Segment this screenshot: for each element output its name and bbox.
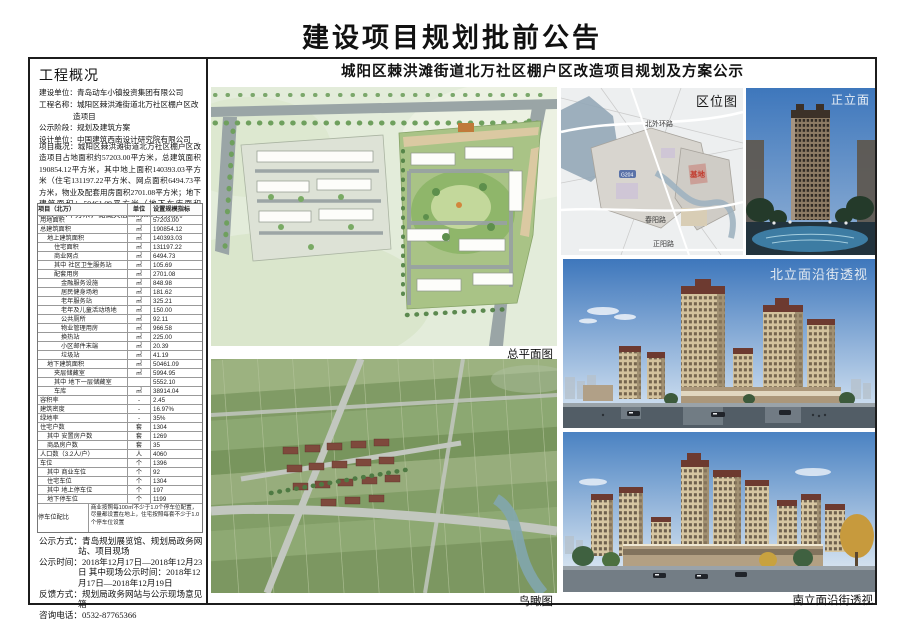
table-row: 绿地率-35% xyxy=(38,414,202,423)
row-label: 容积率 xyxy=(38,396,127,404)
header-value: 设置规模指标 xyxy=(150,204,202,215)
row-value: 57203.00 xyxy=(150,216,202,224)
row-label-text: 商业网点 xyxy=(54,253,79,260)
row-label: 其中地下一层储藏室 xyxy=(38,378,127,386)
announcement-value: 青岛规划展览馆、规划局政务网站、项目现场 xyxy=(78,536,202,556)
south-perspective-caption: 南立面沿街透视 xyxy=(563,592,873,608)
row-label-text: 车库 xyxy=(54,388,66,395)
row-unit: ㎡ xyxy=(127,297,150,305)
location-map-drawing: G204 北外环路 春阳路 正阳路 基地 xyxy=(561,88,743,255)
site-plan-image xyxy=(211,87,557,346)
row-unit: ㎡ xyxy=(127,315,150,323)
page-title: 建设项目规划批前公告 xyxy=(0,16,904,55)
row-unit: 个 xyxy=(127,486,150,494)
announcement-value: 2018年12月17日—2018年12月23日 其中现场公示时间：2018年12… xyxy=(78,557,202,587)
row-unit: 人 xyxy=(127,450,150,458)
front-elevation-caption: 正立面 xyxy=(831,91,870,108)
row-label-text: 地下建筑面积 xyxy=(47,361,84,368)
row-label-text: 夹层储藏室 xyxy=(54,370,85,377)
row-value: 131197.22 xyxy=(150,243,202,251)
row-label: 住宅车位 xyxy=(38,477,127,485)
row-label: 其中安置房户数 xyxy=(38,432,127,440)
table-row: 人口数（3.2人/户）人4060 xyxy=(38,450,202,459)
table-row: 其中安置房户数套1269 xyxy=(38,432,202,441)
announcement-label: 反馈方式： xyxy=(39,589,82,599)
row-unit: ㎡ xyxy=(127,387,150,395)
info-value: 青岛动车小镇投资集团有限公司 xyxy=(77,88,183,97)
row-value: 35 xyxy=(150,441,202,449)
announcement-line: 公示时间：2018年12月17日—2018年12月23日 其中现场公示时间：20… xyxy=(39,557,203,587)
row-unit: ㎡ xyxy=(127,369,150,377)
row-label: 公共厕所 xyxy=(38,315,127,323)
row-label-text: 居民健身场地 xyxy=(61,289,98,296)
row-unit: ㎡ xyxy=(127,243,150,251)
north-perspective-drawing xyxy=(563,259,875,428)
row-label: 老年服务站 xyxy=(38,297,127,305)
overview-heading: 工程概况 xyxy=(39,65,99,85)
row-value: 105.69 xyxy=(150,261,202,269)
row-label-text: 老年及儿童活动场地 xyxy=(61,307,117,314)
table-row: 居民健身场地㎡181.62 xyxy=(38,288,202,297)
row-label-text: 地上建筑面积 xyxy=(47,235,84,242)
table-row: 公共厕所㎡92.11 xyxy=(38,315,202,324)
row-label-text: 住宅车位 xyxy=(47,478,72,485)
row-label-text: 住宅面积 xyxy=(54,244,79,251)
row-value: 50461.09 xyxy=(150,360,202,368)
row-label-text: 物业管理用房 xyxy=(61,325,98,332)
front-elevation-image: 正立面 xyxy=(746,88,875,255)
table-row: 住宅车位个1304 xyxy=(38,477,202,486)
front-elevation-drawing xyxy=(746,88,875,255)
row-value: 92.11 xyxy=(150,315,202,323)
row-value: 6494.73 xyxy=(150,252,202,260)
row-unit: 套 xyxy=(127,423,150,431)
row-label: 金融服务设施 xyxy=(38,279,127,287)
row-unit: ㎡ xyxy=(127,342,150,350)
table-row: 配套用房㎡2701.08 xyxy=(38,270,202,279)
row-label-text: 总建筑面积 xyxy=(40,226,71,233)
announcement-label: 公示方式： xyxy=(39,536,82,546)
row-label: 老年及儿童活动场地 xyxy=(38,306,127,314)
announcement-label: 咨询电话： xyxy=(39,610,82,620)
row-label: 夹层储藏室 xyxy=(38,369,127,377)
row-unit: ㎡ xyxy=(127,270,150,278)
row-value: 190854.12 xyxy=(150,225,202,233)
south-perspective-image xyxy=(563,432,875,592)
table-row: 老年服务站㎡325.21 xyxy=(38,297,202,306)
table-row: 住宅面积㎡131197.22 xyxy=(38,243,202,252)
row-value: 140393.03 xyxy=(150,234,202,242)
row-unit: ㎡ xyxy=(127,351,150,359)
project-subtitle: 城阳区棘洪滩街道北万社区棚户区改造项目规划及方案公示 xyxy=(210,59,875,86)
row-unit: 个 xyxy=(127,495,150,503)
qizhong-marker: 其中 xyxy=(47,433,59,440)
row-label-text: 小区邮件末端 xyxy=(61,343,98,350)
row-label-text: 老年服务站 xyxy=(61,298,92,305)
row-value: 1304 xyxy=(150,423,202,431)
announcement-line: 反馈方式：规划局政务网站与公示现场意见箱 xyxy=(39,589,203,609)
row-value: 5552.10 xyxy=(150,378,202,386)
row-unit: 套 xyxy=(127,441,150,449)
info-value: 城阳区棘洪滩街道北万社区棚户区改造项目 xyxy=(73,100,198,121)
row-value: 848.98 xyxy=(150,279,202,287)
location-map-image: G204 北外环路 春阳路 正阳路 基地 区位图 xyxy=(561,88,743,255)
row-value: 2701.08 xyxy=(150,270,202,278)
row-label-text: 换热站 xyxy=(61,334,80,341)
row-value: 41.19 xyxy=(150,351,202,359)
table-row: 老年及儿童活动场地㎡150.00 xyxy=(38,306,202,315)
header-unit: 单位 xyxy=(127,204,150,215)
row-label: 用地面积 xyxy=(38,216,127,224)
table-header-row: 项目（北万）单位设置规模指标 xyxy=(38,204,202,216)
row-label: 商业网点 xyxy=(38,252,127,260)
row-unit: - xyxy=(127,396,150,404)
table-row: 地下建筑面积㎡50461.09 xyxy=(38,360,202,369)
row-unit: ㎡ xyxy=(127,252,150,260)
row-label-text: 容积率 xyxy=(40,397,59,404)
south-perspective-drawing xyxy=(563,432,875,592)
site-plan-drawing xyxy=(211,87,557,346)
site-marker-label: 基地 xyxy=(689,169,705,179)
info-label: 工程名称： xyxy=(39,100,77,109)
row-value: 1269 xyxy=(150,432,202,440)
qizhong-marker: 其中 xyxy=(47,487,59,494)
table-row: 总建筑面积㎡190854.12 xyxy=(38,225,202,234)
row-label-text: 商业车位 xyxy=(61,469,86,476)
table-row: 垃圾站㎡41.19 xyxy=(38,351,202,360)
table-row: 商业网点㎡6494.73 xyxy=(38,252,202,261)
table-row: 其中地下一层储藏室5552.10 xyxy=(38,378,202,387)
row-label: 人口数（3.2人/户） xyxy=(38,450,127,458)
table-row: 住宅户数套1304 xyxy=(38,423,202,432)
table-row: 用地面积㎡57203.00 xyxy=(38,216,202,225)
row-label: 商品房户数 xyxy=(38,441,127,449)
row-unit: 个 xyxy=(127,459,150,467)
row-unit: - xyxy=(127,414,150,422)
row-unit: ㎡ xyxy=(127,225,150,233)
project-info-line: 工程名称：城阳区棘洪滩街道北万社区棚户区改造项目 xyxy=(39,99,201,123)
row-unit: ㎡ xyxy=(127,306,150,314)
row-unit: ㎡ xyxy=(127,324,150,332)
row-label: 小区邮件末端 xyxy=(38,342,127,350)
row-label: 车位 xyxy=(38,459,127,467)
row-unit: ㎡ xyxy=(127,216,150,224)
row-label-text: 住宅户数 xyxy=(40,424,65,431)
row-unit: - xyxy=(127,405,150,413)
row-value: 1304 xyxy=(150,477,202,485)
row-value: 966.58 xyxy=(150,324,202,332)
qizhong-marker: 其中 xyxy=(54,379,66,386)
row-label: 车库 xyxy=(38,387,127,395)
row-value: 325.21 xyxy=(150,297,202,305)
row-value: 1199 xyxy=(150,495,202,503)
row-label-text: 用地面积 xyxy=(40,217,65,224)
row-label-text: 地下一层储藏室 xyxy=(68,379,111,386)
row-unit: 个 xyxy=(127,477,150,485)
table-row: 车位个1396 xyxy=(38,459,202,468)
aerial-view-drawing xyxy=(211,359,557,593)
row-value: 20.39 xyxy=(150,342,202,350)
row-unit xyxy=(127,378,150,386)
row-value: 5994.95 xyxy=(150,369,202,377)
row-label-text: 垃圾站 xyxy=(61,352,80,359)
announcement-line: 公示方式：青岛规划展览馆、规划局政务网站、项目现场 xyxy=(39,536,203,556)
row-label-text: 地上停车位 xyxy=(61,487,92,494)
row-unit: 套 xyxy=(127,432,150,440)
table-row: 物业管理用房㎡966.58 xyxy=(38,324,202,333)
row-label: 垃圾站 xyxy=(38,351,127,359)
row-value: 16.97% xyxy=(150,405,202,413)
row-label: 其中地上停车位 xyxy=(38,486,127,494)
row-value: 225.00 xyxy=(150,333,202,341)
row-label: 其中社区卫生服务站 xyxy=(38,261,127,269)
row-unit: ㎡ xyxy=(127,288,150,296)
parking-ratio-row: 停车位配比商业按照每100㎡不少于1.0个停车位配置，尽量都设置在地上，住宅按照… xyxy=(38,504,202,532)
announcement-value: 0532-87765366 xyxy=(82,610,136,620)
row-label: 换热站 xyxy=(38,333,127,341)
table-row: 地上建筑面积㎡140393.03 xyxy=(38,234,202,243)
row-label: 建筑密度 xyxy=(38,405,127,413)
row-label: 物业管理用房 xyxy=(38,324,127,332)
header-item: 项目（北万） xyxy=(38,204,127,215)
table-row: 其中地上停车位个197 xyxy=(38,486,202,495)
row-value: 4060 xyxy=(150,450,202,458)
project-overview-panel: 工程概况 建设单位：青岛动车小镇投资集团有限公司工程名称：城阳区棘洪滩街道北万社… xyxy=(30,59,208,603)
row-label-text: 建筑密度 xyxy=(40,406,65,413)
row-unit: ㎡ xyxy=(127,261,150,269)
aerial-view-caption: 鸟瞰图 xyxy=(211,593,553,609)
aerial-view-image xyxy=(211,359,557,593)
highway-badge: G204 xyxy=(621,172,633,178)
road-label-zhengyang: 正阳路 xyxy=(653,239,674,248)
row-unit: ㎡ xyxy=(127,360,150,368)
table-row: 车库㎡38914.04 xyxy=(38,387,202,396)
central-tower xyxy=(791,104,830,220)
row-value: 38914.04 xyxy=(150,387,202,395)
content-frame: 工程概况 建设单位：青岛动车小镇投资集团有限公司工程名称：城阳区棘洪滩街道北万社… xyxy=(28,57,877,605)
table-row: 夹层储藏室㎡5994.95 xyxy=(38,369,202,378)
indicator-table: 项目（北万）单位设置规模指标用地面积㎡57203.00总建筑面积㎡190854.… xyxy=(37,203,203,533)
row-label-text: 社区卫生服务站 xyxy=(68,262,111,269)
row-label: 总建筑面积 xyxy=(38,225,127,233)
north-perspective-image: 北立面沿街透视 xyxy=(563,259,875,428)
table-row: 金融服务设施㎡848.98 xyxy=(38,279,202,288)
qizhong-marker: 其中 xyxy=(47,469,59,476)
announcement-line: 咨询电话：0532-87765366 xyxy=(39,610,203,620)
row-label: 住宅户数 xyxy=(38,423,127,431)
table-row: 小区邮件末端㎡20.39 xyxy=(38,342,202,351)
row-label-text: 车位 xyxy=(40,460,52,467)
row-label: 居民健身场地 xyxy=(38,288,127,296)
row-unit: ㎡ xyxy=(127,234,150,242)
row-unit: 个 xyxy=(127,468,150,476)
project-info-line: 公示阶段：规划及建筑方案 xyxy=(39,122,201,134)
row-label: 地上建筑面积 xyxy=(38,234,127,242)
row-label-text: 绿地率 xyxy=(40,415,59,422)
table-row: 建筑密度-16.97% xyxy=(38,405,202,414)
row-label-text: 金融服务设施 xyxy=(61,280,98,287)
row-label: 住宅面积 xyxy=(38,243,127,251)
qizhong-marker: 其中 xyxy=(54,262,66,269)
parking-ratio-text: 商业按照每100㎡不少于1.0个停车位配置，尽量都设置在地上，住宅按照每套不少于… xyxy=(88,504,202,532)
row-label: 配套用房 xyxy=(38,270,127,278)
street xyxy=(563,570,875,592)
north-perspective-caption: 北立面沿街透视 xyxy=(770,264,868,283)
project-info-line: 建设单位：青岛动车小镇投资集团有限公司 xyxy=(39,87,201,99)
table-row: 其中社区卫生服务站㎡105.69 xyxy=(38,261,202,270)
row-value: 181.62 xyxy=(150,288,202,296)
table-row: 换热站㎡225.00 xyxy=(38,333,202,342)
announcement-info-list: 公示方式：青岛规划展览馆、规划局政务网站、项目现场公示时间：2018年12月17… xyxy=(39,536,203,621)
road-label-north-ring: 北外环路 xyxy=(645,119,673,128)
row-label: 地下建筑面积 xyxy=(38,360,127,368)
parking-ratio-label: 停车位配比 xyxy=(38,504,88,532)
row-label-text: 配套用房 xyxy=(54,271,79,278)
table-row: 容积率-2.45 xyxy=(38,396,202,405)
info-label: 建设单位： xyxy=(39,88,77,97)
info-value: 规划及建筑方案 xyxy=(77,123,130,132)
row-label: 其中商业车位 xyxy=(38,468,127,476)
row-label: 绿地率 xyxy=(38,414,127,422)
location-map-caption: 区位图 xyxy=(696,91,738,110)
row-unit: ㎡ xyxy=(127,279,150,287)
table-row: 地下停车位个1199 xyxy=(38,495,202,504)
row-label: 地下停车位 xyxy=(38,495,127,503)
road-label-chunyang: 春阳路 xyxy=(645,215,666,224)
row-label-text: 商品房户数 xyxy=(47,442,78,449)
row-value: 197 xyxy=(150,486,202,494)
announcement-poster: 建设项目规划批前公告 工程概况 建设单位：青岛动车小镇投资集团有限公司工程名称：… xyxy=(0,0,904,640)
row-value: 150.00 xyxy=(150,306,202,314)
row-value: 92 xyxy=(150,468,202,476)
pool xyxy=(752,226,868,252)
announcement-value: 规划局政务网站与公示现场意见箱 xyxy=(78,589,202,609)
project-info-list: 建设单位：青岛动车小镇投资集团有限公司工程名称：城阳区棘洪滩街道北万社区棚户区改… xyxy=(39,87,201,146)
row-value: 1396 xyxy=(150,459,202,467)
announcement-label: 公示时间： xyxy=(39,557,82,567)
table-row: 其中商业车位个92 xyxy=(38,468,202,477)
row-label-text: 公共厕所 xyxy=(61,316,86,323)
info-label: 公示阶段： xyxy=(39,123,77,132)
row-unit: ㎡ xyxy=(127,333,150,341)
table-row: 商品房户数套35 xyxy=(38,441,202,450)
row-label-text: 安置房户数 xyxy=(61,433,92,440)
row-label-text: 人口数（3.2人/户） xyxy=(40,451,94,458)
row-label-text: 地下停车位 xyxy=(47,496,78,503)
row-value: 35% xyxy=(150,414,202,422)
row-value: 2.45 xyxy=(150,396,202,404)
